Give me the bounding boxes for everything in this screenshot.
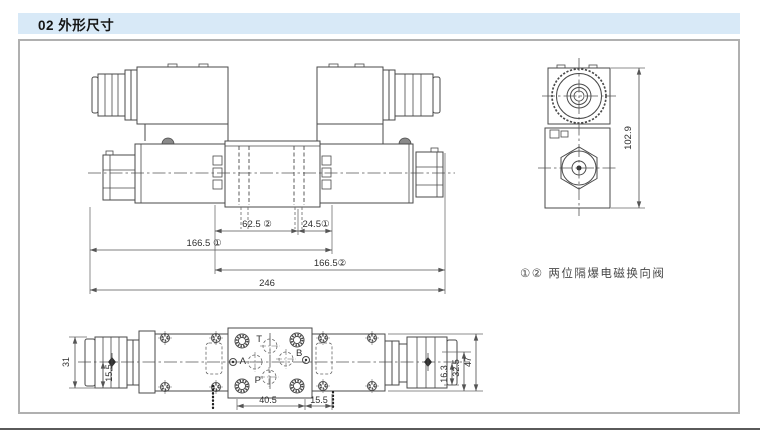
section-title: 02 外形尺寸 xyxy=(18,14,114,34)
section-header: 02 外形尺寸 xyxy=(18,13,740,34)
drawing-panel xyxy=(18,39,740,414)
